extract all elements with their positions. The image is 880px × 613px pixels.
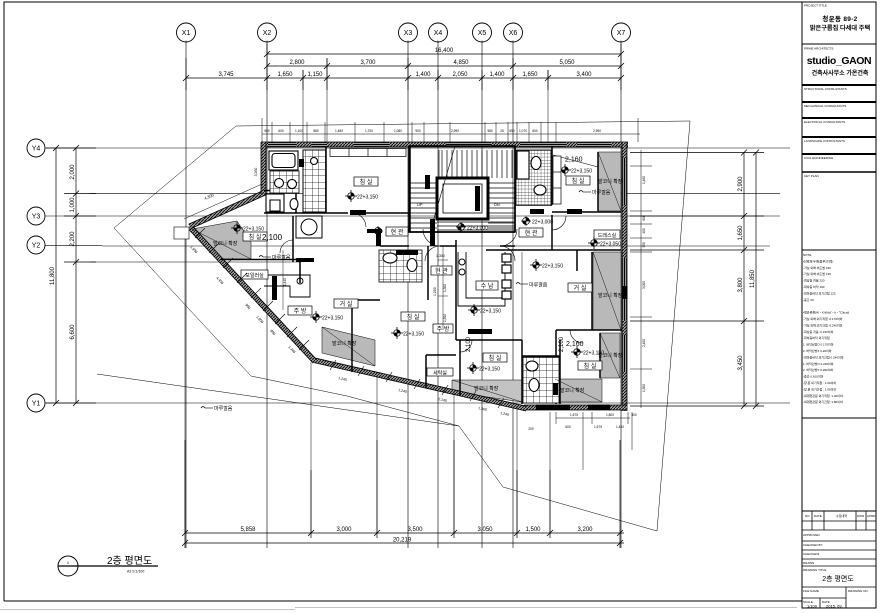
svg-text:880: 880: [313, 129, 319, 133]
svg-text:22+3,150: 22+3,150: [243, 227, 264, 233]
svg-text:-최하층 바닥 190: -최하층 바닥 190: [803, 284, 825, 289]
svg-text:침 실: 침 실: [360, 178, 373, 186]
svg-text:22+3,150: 22+3,150: [357, 195, 378, 201]
svg-text:X1: X1: [182, 30, 191, 37]
svg-text:KEY PLAN: KEY PLAN: [804, 174, 819, 178]
svg-text:2층 평면도: 2층 평면도: [822, 574, 854, 583]
svg-text:1,200: 1,200: [433, 287, 437, 296]
svg-text:1,480: 1,480: [335, 129, 343, 133]
svg-text:X2: X2: [263, 30, 272, 37]
svg-text:-세대현관문 외기직접 :1.40이하: -세대현관문 외기직접 :1.40이하: [803, 393, 843, 398]
svg-text:•열관류율(W・K/W/㎡・h・℃/kcal): •열관류율(W・K/W/㎡・h・℃/kcal): [803, 310, 849, 315]
svg-text:1,100: 1,100: [295, 129, 303, 133]
svg-text:22+3,050: 22+3,050: [600, 242, 621, 248]
svg-text:11,850: 11,850: [750, 269, 756, 288]
svg-text:-거실 외벽:외기간접 :0.240이하: -거실 외벽:외기간접 :0.240이하: [803, 322, 843, 327]
svg-text:1. 바닥난방O 0.240이하: 1. 바닥난방O 0.240이하: [803, 361, 834, 366]
svg-text:22+3,000: 22+3,000: [532, 220, 553, 226]
svg-text:4,850: 4,850: [453, 60, 469, 66]
svg-text:3,000: 3,000: [642, 281, 646, 289]
svg-text:1,675: 1,675: [570, 413, 578, 417]
svg-text:-최하층바닥 외기직접: -최하층바닥 외기직접: [803, 335, 830, 340]
svg-text:CHECKED BY: CHECKED BY: [803, 543, 823, 547]
svg-text:600: 600: [565, 425, 571, 429]
svg-text:맑은구름집 다세대 주택: 맑은구름집 다세대 주택: [810, 24, 871, 32]
svg-text:350: 350: [642, 242, 646, 248]
svg-text:2. 바닥난방X 0.20이하: 2. 바닥난방X 0.20이하: [803, 348, 832, 353]
svg-text:DN: DN: [494, 202, 500, 207]
svg-text:침 실: 침 실: [489, 354, 502, 362]
svg-text:6,600: 6,600: [70, 324, 76, 340]
svg-text:•단열재 두께(중부2지역): •단열재 두께(중부2지역): [803, 258, 833, 263]
svg-text:DRAWING TITLE: DRAWING TITLE: [803, 568, 826, 572]
svg-text:DRAWING NO.: DRAWING NO.: [848, 589, 869, 593]
svg-text:LANDSCAPE CONSULTANTS: LANDSCAPE CONSULTANTS: [804, 139, 845, 143]
svg-text:500: 500: [264, 129, 270, 133]
svg-text:2. 바닥난방X 0.290이하: 2. 바닥난방X 0.290이하: [803, 367, 833, 372]
svg-text:마루깔음: 마루깔음: [214, 405, 233, 412]
svg-text:1. 바닥난방O 0.170이하: 1. 바닥난방O 0.170이하: [803, 342, 834, 347]
svg-text:DRAWN: DRAWN: [803, 561, 814, 565]
svg-text:22+3,150: 22+3,150: [542, 264, 563, 270]
svg-text:마루깔음: 마루깔음: [592, 189, 611, 196]
svg-text:현 관: 현 관: [435, 267, 448, 275]
svg-text:침 실: 침 실: [249, 233, 262, 241]
svg-text:3,800: 3,800: [738, 277, 744, 293]
svg-text:1,650: 1,650: [522, 72, 538, 78]
svg-text:주 방: 주 방: [294, 307, 307, 315]
svg-text:X5: X5: [478, 30, 487, 37]
svg-text:침 실: 침 실: [572, 177, 585, 185]
svg-text:1,650: 1,650: [738, 225, 744, 241]
svg-text:1,440: 1,440: [283, 278, 287, 286]
svg-text:3,260: 3,260: [254, 168, 258, 177]
svg-text:3,000: 3,000: [336, 527, 352, 533]
svg-text:1,070: 1,070: [519, 129, 527, 133]
svg-text:DWN: DWN: [857, 514, 864, 518]
svg-text:2,050: 2,050: [452, 72, 468, 78]
svg-text:2층 평면도: 2층 평면도: [107, 555, 152, 567]
svg-text:1,650: 1,650: [277, 72, 293, 78]
svg-text:건축사사무소 가온건축: 건축사사무소 가온건축: [812, 69, 869, 77]
svg-text:22+3,150: 22+3,150: [322, 316, 343, 322]
svg-text:2,800: 2,800: [289, 60, 305, 66]
svg-text:보일러실: 보일러실: [245, 272, 264, 279]
svg-text:5,050: 5,050: [559, 60, 575, 66]
svg-text:600: 600: [278, 129, 284, 133]
svg-text:APPROVED: APPROVED: [803, 533, 821, 537]
svg-text:거 실: 거 실: [340, 300, 353, 308]
svg-text:22+3,000: 22+3,000: [467, 226, 488, 232]
svg-text:Y2: Y2: [32, 243, 41, 250]
svg-text:2015. 09.: 2015. 09.: [826, 604, 843, 609]
svg-text:CHECKED2: CHECKED2: [803, 552, 820, 556]
svg-text:1,700: 1,700: [365, 129, 373, 133]
svg-text:1,675: 1,675: [594, 425, 602, 429]
svg-text:980: 980: [487, 129, 493, 133]
svg-text:1,800: 1,800: [606, 413, 614, 417]
svg-text:Y3: Y3: [32, 214, 41, 221]
svg-text:900: 900: [415, 129, 421, 133]
svg-text:PROJECT TITLE: PROJECT TITLE: [804, 4, 827, 8]
svg-text:수 납: 수 납: [481, 282, 494, 290]
svg-text:2,000: 2,000: [70, 164, 76, 180]
svg-text:CIVIL ENGINEERING: CIVIL ENGINEERING: [804, 156, 834, 160]
svg-text:3,050: 3,050: [477, 527, 493, 533]
svg-text:-거실 외벽:비드법 135: -거실 외벽:비드법 135: [803, 271, 831, 276]
svg-text:600: 600: [532, 129, 538, 133]
svg-text:-세대현관문 외기간접 :1.80이하: -세대현관문 외기간접 :1.80이하: [803, 399, 843, 404]
svg-text:3,745: 3,745: [218, 72, 234, 78]
svg-text:X4: X4: [434, 30, 443, 37]
svg-text:25: 25: [500, 129, 504, 133]
svg-text:16,400: 16,400: [435, 48, 454, 54]
svg-text:-창,문 외기간접 : 1.90이하: -창,문 외기간접 : 1.90이하: [803, 386, 836, 391]
svg-text:발코니 확장: 발코니 확장: [598, 292, 623, 299]
svg-text:650: 650: [509, 129, 515, 133]
svg-text:1,500: 1,500: [525, 527, 541, 533]
svg-text:200: 200: [528, 427, 534, 431]
svg-text:Y4: Y4: [32, 146, 41, 153]
svg-text:STRUCTURAL CONSULTANTS: STRUCTURAL CONSULTANTS: [804, 87, 847, 91]
svg-text:ELECTRICAL CONSULTANTS: ELECTRICAL CONSULTANTS: [804, 120, 845, 124]
svg-text:-최상층 지붕 :0.150이하: -최상층 지붕 :0.150이하: [803, 329, 834, 334]
svg-text:-층간 20: -층간 20: [803, 297, 814, 302]
svg-text:3,450: 3,450: [738, 355, 744, 371]
svg-text:거 실: 거 실: [574, 284, 587, 292]
svg-text:3,200: 3,200: [577, 527, 593, 533]
svg-text:A3 S:1/100: A3 S:1/100: [127, 570, 144, 574]
svg-text:PRIME ARCHITECTS: PRIME ARCHITECTS: [804, 47, 833, 51]
svg-text:발코니 확장: 발코니 확장: [598, 352, 623, 359]
svg-text:-거실 외벽:외기직접 :0.170이하: -거실 외벽:외기직접 :0.170이하: [803, 316, 843, 321]
svg-text:1,300: 1,300: [443, 284, 447, 292]
svg-text:2,100: 2,100: [466, 336, 472, 352]
svg-text:2,900: 2,900: [738, 176, 744, 192]
svg-text:22+3,150: 22+3,150: [480, 309, 501, 315]
svg-text:3,400: 3,400: [576, 72, 592, 78]
svg-text:22+3,150: 22+3,150: [571, 169, 592, 175]
svg-text:22+3,150: 22+3,150: [403, 332, 424, 338]
svg-text:-창,문 외기직접 : 1.00이하: -창,문 외기직접 : 1.00이하: [803, 380, 836, 385]
svg-text:1,300: 1,300: [436, 254, 445, 258]
svg-text:2,990: 2,990: [593, 129, 601, 133]
svg-text:22+3,150: 22+3,150: [479, 367, 500, 373]
svg-text:600: 600: [642, 215, 646, 221]
svg-text:현 관: 현 관: [525, 229, 538, 237]
svg-text:청운동 89-2: 청운동 89-2: [822, 14, 857, 23]
svg-text:1,000: 1,000: [70, 197, 76, 213]
svg-text:마루깔음: 마루깔음: [272, 254, 291, 261]
svg-text:1,400: 1,400: [489, 72, 505, 78]
svg-text:1,500: 1,500: [443, 314, 447, 322]
svg-text:Y1: Y1: [32, 401, 41, 408]
svg-text:침 실: 침 실: [407, 313, 420, 321]
svg-text:-최하층바닥 외기간접 0.240이하: -최하층바닥 외기간접 0.240이하: [803, 354, 844, 359]
svg-text:2,990: 2,990: [451, 129, 459, 133]
svg-text:3,500: 3,500: [407, 527, 423, 533]
svg-text:studio_GAON: studio_GAON: [807, 55, 871, 67]
svg-text:발코니 확장: 발코니 확장: [560, 387, 585, 394]
svg-text:3,700: 3,700: [360, 60, 376, 66]
svg-text:마루깔음: 마루깔음: [529, 282, 548, 289]
svg-text:FILE NAME: FILE NAME: [803, 589, 819, 593]
svg-text:-최상층 지붕 220: -최상층 지붕 220: [803, 278, 825, 283]
svg-text:수정내역: 수정내역: [836, 513, 847, 518]
svg-text:X3: X3: [404, 30, 413, 37]
svg-text:NO: NO: [805, 514, 810, 518]
svg-text:MECHANICAL CONSULTANTS: MECHANICAL CONSULTANTS: [804, 104, 846, 108]
svg-text:1,300: 1,300: [642, 384, 646, 392]
svg-text:1,150: 1,150: [307, 72, 323, 78]
svg-text:NOTE: NOTE: [803, 253, 811, 257]
svg-text:1,460: 1,460: [642, 176, 646, 184]
svg-text:2,100: 2,100: [559, 336, 565, 352]
svg-text:-거실 외벽:비드법 190: -거실 외벽:비드법 190: [803, 265, 831, 270]
svg-text:2,200: 2,200: [70, 231, 76, 247]
svg-text:20,219: 20,219: [393, 538, 412, 544]
svg-text:1/100: 1/100: [807, 604, 818, 609]
svg-text:1,080: 1,080: [394, 129, 402, 133]
svg-text:1,400: 1,400: [415, 72, 431, 78]
svg-text:-층간 0.810이하: -층간 0.810이하: [803, 374, 824, 379]
svg-text:11,800: 11,800: [50, 266, 56, 285]
svg-text:5,858: 5,858: [240, 527, 256, 533]
svg-text:APRD: APRD: [867, 514, 876, 518]
svg-text:X7: X7: [617, 30, 626, 37]
svg-text:-최하층바닥 외기간접 125: -최하층바닥 외기간접 125: [803, 290, 836, 295]
svg-text:드레스실: 드레스실: [598, 232, 617, 239]
svg-text:UP: UP: [417, 202, 423, 207]
svg-text:2,100: 2,100: [262, 233, 283, 242]
svg-text:DATE: DATE: [814, 514, 822, 518]
svg-text:침 실: 침 실: [584, 362, 597, 370]
svg-text:현 관: 현 관: [391, 228, 404, 236]
svg-text:2,160: 2,160: [566, 341, 584, 348]
svg-text:1,400: 1,400: [616, 425, 624, 429]
svg-text:세탁실: 세탁실: [433, 370, 447, 377]
svg-text:400: 400: [642, 228, 646, 234]
svg-text:2,400: 2,400: [642, 339, 646, 347]
svg-text:X6: X6: [509, 30, 518, 37]
svg-text:주 방: 주 방: [437, 325, 450, 333]
